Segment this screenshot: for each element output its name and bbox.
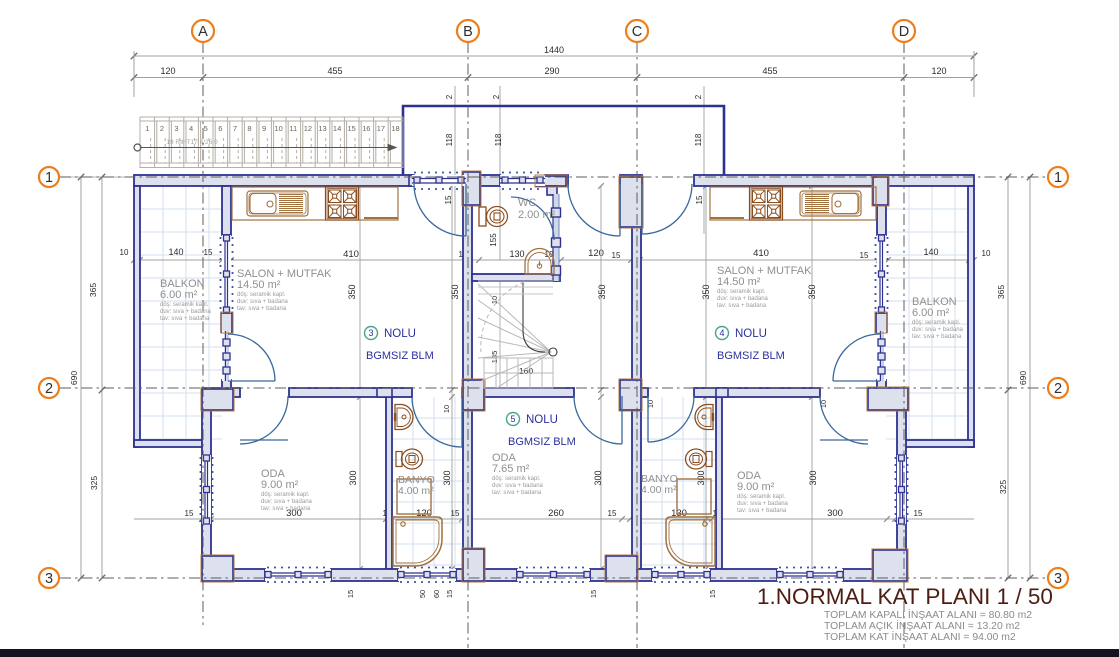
- svg-text:8: 8: [247, 124, 251, 133]
- svg-text:14.50 m²: 14.50 m²: [717, 276, 761, 288]
- svg-text:6: 6: [218, 124, 222, 133]
- svg-text:455: 455: [327, 66, 342, 76]
- svg-text:6.00 m²: 6.00 m²: [160, 289, 198, 301]
- svg-text:118: 118: [494, 133, 503, 146]
- svg-text:tav: sıva + badana: tav: sıva + badana: [160, 316, 210, 322]
- svg-text:14.50 m²: 14.50 m²: [237, 279, 281, 291]
- svg-text:15: 15: [914, 509, 923, 518]
- svg-text:NOLU: NOLU: [526, 414, 558, 426]
- svg-text:300: 300: [808, 470, 818, 485]
- svg-text:NOLU: NOLU: [735, 328, 767, 340]
- svg-text:290: 290: [544, 66, 559, 76]
- svg-text:duv: sıva + badana: duv: sıva + badana: [737, 501, 789, 507]
- svg-text:tav: sıva + badana: tav: sıva + badana: [237, 306, 287, 312]
- svg-text:tav: sıva + badana: tav: sıva + badana: [912, 334, 962, 340]
- svg-text:TOPLAM AÇIK İNŞAAT ALANI =: TOPLAM AÇIK İNŞAAT ALANI = 13.20 m2: [824, 619, 1020, 632]
- svg-text:365: 365: [996, 285, 1006, 299]
- svg-text:120: 120: [160, 66, 175, 76]
- svg-text:350: 350: [347, 284, 357, 299]
- svg-text:1.NORMAL KAT PLANI 1 / 50: 1.NORMAL KAT PLANI 1 / 50: [757, 584, 1053, 609]
- svg-text:50: 50: [418, 590, 427, 598]
- svg-text:15: 15: [204, 248, 213, 257]
- svg-text:duv: sıva + badana: duv: sıva + badana: [717, 296, 769, 302]
- svg-text:7: 7: [233, 124, 237, 133]
- svg-text:döş: seramik kapl.: döş: seramik kapl.: [237, 292, 286, 298]
- svg-text:D: D: [899, 24, 909, 40]
- svg-text:1: 1: [145, 124, 149, 133]
- svg-text:2.00 m²: 2.00 m²: [518, 209, 556, 221]
- svg-text:325: 325: [89, 476, 99, 490]
- svg-text:15: 15: [860, 251, 869, 260]
- svg-text:TOPLAM KAT İNŞAAT ALANI: TOPLAM KAT İNŞAAT ALANI = 94.00 m2: [824, 630, 1016, 643]
- svg-text:döş: seramik kapl.: döş: seramik kapl.: [492, 476, 541, 482]
- svg-text:WC: WC: [518, 197, 536, 209]
- svg-text:325: 325: [998, 480, 1008, 494]
- svg-text:7.65 m²: 7.65 m²: [492, 463, 530, 475]
- svg-text:12: 12: [304, 124, 312, 133]
- svg-text:6.00 m²: 6.00 m²: [912, 307, 950, 319]
- svg-text:duv: sıva + badana: duv: sıva + badana: [912, 327, 964, 333]
- svg-text:A: A: [198, 24, 208, 40]
- svg-text:350: 350: [701, 284, 711, 299]
- svg-text:10: 10: [442, 405, 451, 413]
- svg-text:döş: seramik kapl.: döş: seramik kapl.: [261, 492, 310, 498]
- svg-text:tav: sıva + badana: tav: sıva + badana: [261, 506, 311, 512]
- svg-text:155: 155: [489, 233, 498, 247]
- svg-text:118: 118: [445, 133, 454, 146]
- svg-text:1: 1: [1054, 170, 1062, 186]
- svg-text:15: 15: [708, 590, 717, 598]
- svg-text:duv: sıva + badana: duv: sıva + badana: [160, 309, 212, 315]
- svg-text:5: 5: [204, 124, 208, 133]
- svg-text:3: 3: [174, 124, 178, 133]
- svg-text:tav: sıva + badana: tav: sıva + badana: [717, 303, 767, 309]
- svg-text:NOLU: NOLU: [384, 328, 416, 340]
- svg-text:1440: 1440: [544, 45, 564, 55]
- svg-text:17: 17: [377, 124, 385, 133]
- svg-text:15: 15: [608, 509, 617, 518]
- svg-text:4: 4: [719, 328, 724, 338]
- svg-text:350: 350: [807, 284, 817, 299]
- svg-text:15: 15: [444, 195, 453, 204]
- svg-text:60: 60: [432, 590, 441, 598]
- svg-text:300: 300: [593, 470, 603, 485]
- svg-text:B: B: [463, 24, 473, 40]
- svg-text:4: 4: [189, 124, 193, 133]
- svg-text:9.00 m²: 9.00 m²: [261, 479, 299, 491]
- svg-text:4.00 m²: 4.00 m²: [398, 485, 434, 497]
- svg-text:BGMSIZ BLM: BGMSIZ BLM: [508, 436, 576, 448]
- svg-text:410: 410: [343, 249, 359, 260]
- svg-text:3: 3: [45, 571, 53, 587]
- svg-text:120: 120: [931, 66, 946, 76]
- svg-text:130: 130: [509, 249, 524, 259]
- svg-text:15: 15: [612, 251, 621, 260]
- svg-text:2: 2: [694, 94, 703, 99]
- svg-text:160: 160: [519, 366, 533, 376]
- svg-text:140: 140: [923, 247, 938, 257]
- svg-text:350: 350: [597, 284, 607, 299]
- svg-text:4.00 m²: 4.00 m²: [641, 484, 677, 496]
- svg-text:19 RIHT17.4/26.0: 19 RIHT17.4/26.0: [166, 139, 218, 146]
- svg-text:1: 1: [45, 170, 53, 186]
- svg-text:350: 350: [450, 284, 460, 299]
- svg-text:118: 118: [694, 133, 703, 146]
- svg-text:TOPLAM KAPALI İNŞAAT ALANI =: TOPLAM KAPALI İNŞAAT ALANI = 80.80 m2: [824, 608, 1032, 621]
- svg-text:2: 2: [45, 381, 53, 397]
- svg-text:10: 10: [120, 248, 129, 257]
- svg-text:BGMSIZ BLM: BGMSIZ BLM: [366, 350, 434, 362]
- svg-text:15: 15: [445, 590, 454, 598]
- svg-text:3: 3: [368, 328, 373, 338]
- svg-text:410: 410: [753, 248, 769, 259]
- svg-text:300: 300: [696, 470, 706, 485]
- svg-text:140: 140: [168, 247, 183, 257]
- svg-text:690: 690: [69, 371, 79, 385]
- svg-text:tav: sıva + badana: tav: sıva + badana: [737, 508, 787, 514]
- svg-text:duv: sıva + badana: duv: sıva + badana: [261, 499, 313, 505]
- svg-text:2: 2: [160, 124, 164, 133]
- svg-text:15: 15: [695, 195, 704, 204]
- svg-text:365: 365: [88, 283, 98, 297]
- svg-text:döş: seramik kapl.: döş: seramik kapl.: [717, 289, 766, 295]
- svg-text:18: 18: [391, 124, 399, 133]
- svg-text:15: 15: [589, 590, 598, 598]
- svg-text:260: 260: [548, 508, 564, 519]
- svg-text:14: 14: [333, 124, 341, 133]
- svg-text:11: 11: [289, 124, 297, 133]
- svg-text:2: 2: [492, 94, 501, 99]
- svg-text:9: 9: [262, 124, 266, 133]
- svg-text:690: 690: [1018, 371, 1028, 385]
- svg-text:döş: seramik kapl.: döş: seramik kapl.: [160, 302, 209, 308]
- svg-text:2: 2: [445, 94, 454, 99]
- svg-text:15: 15: [185, 509, 194, 518]
- svg-text:duv: sıva + badana: duv: sıva + badana: [492, 483, 544, 489]
- svg-text:10: 10: [275, 124, 283, 133]
- svg-text:15: 15: [348, 124, 356, 133]
- svg-text:3: 3: [1054, 571, 1062, 587]
- svg-text:duv: sıva + badana: duv: sıva + badana: [237, 299, 289, 305]
- svg-text:300: 300: [442, 470, 452, 485]
- svg-text:300: 300: [827, 508, 843, 519]
- svg-text:tav: sıva + badana: tav: sıva + badana: [492, 490, 542, 496]
- svg-text:9.00 m²: 9.00 m²: [737, 481, 775, 493]
- svg-text:13: 13: [318, 124, 326, 133]
- svg-text:15: 15: [346, 590, 355, 598]
- svg-text:300: 300: [348, 470, 358, 485]
- svg-text:C: C: [632, 24, 642, 40]
- svg-text:120: 120: [588, 248, 604, 259]
- svg-text:2: 2: [1054, 381, 1062, 397]
- svg-text:10: 10: [982, 249, 991, 258]
- svg-text:455: 455: [762, 66, 777, 76]
- svg-text:döş: seramik kapl.: döş: seramik kapl.: [737, 494, 786, 500]
- svg-text:16: 16: [362, 124, 370, 133]
- svg-text:5: 5: [510, 414, 515, 424]
- svg-text:BGMSIZ BLM: BGMSIZ BLM: [717, 350, 785, 362]
- svg-text:döş: seramik kapl.: döş: seramik kapl.: [912, 320, 961, 326]
